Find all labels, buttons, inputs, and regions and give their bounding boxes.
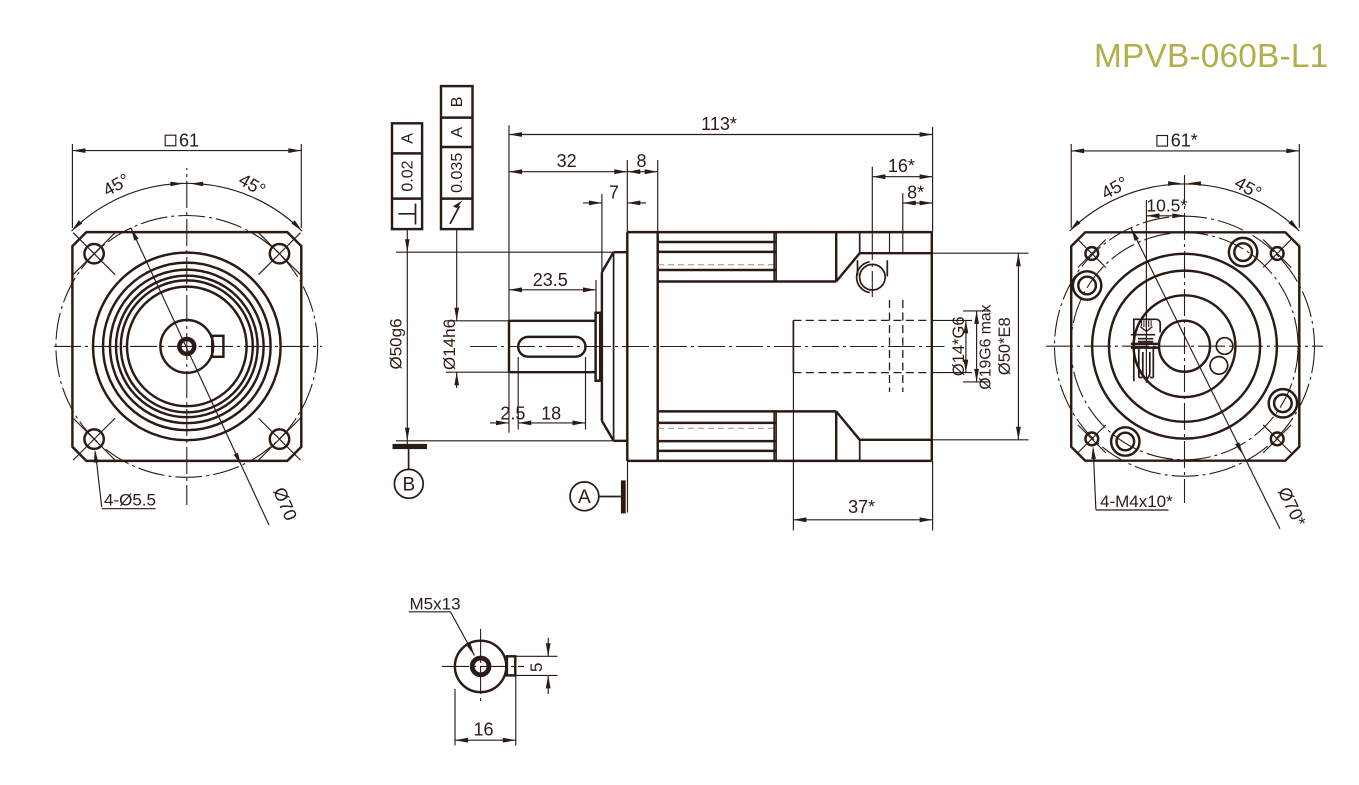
svg-text:B: B [402,475,415,496]
svg-text:7: 7 [609,183,619,203]
svg-text:23.5: 23.5 [533,270,568,290]
svg-text:113*: 113* [701,114,737,134]
svg-text:Ø50*E8: Ø50*E8 [996,317,1014,375]
svg-text:0.02: 0.02 [400,160,417,191]
svg-text:M5x13: M5x13 [410,595,461,614]
svg-text:5: 5 [527,663,546,672]
svg-text:8: 8 [636,151,646,171]
svg-text:A: A [578,487,591,508]
svg-text:32: 32 [557,151,577,171]
svg-text:61*: 61* [1171,131,1198,151]
svg-text:Ø50g6: Ø50g6 [387,318,406,369]
svg-text:8*: 8* [907,183,924,203]
svg-text:A: A [400,133,417,144]
svg-text:MPVB-060B-L1: MPVB-060B-L1 [1094,38,1328,75]
svg-text:Ø14*G6: Ø14*G6 [950,316,968,376]
svg-text:10.5*: 10.5* [1146,195,1187,215]
svg-text:37*: 37* [848,497,875,517]
svg-text:Ø19G6 max: Ø19G6 max [978,304,995,389]
svg-text:B: B [449,97,466,108]
svg-text:4-Ø5.5: 4-Ø5.5 [104,491,156,510]
svg-text:18: 18 [541,404,561,424]
svg-text:2.5: 2.5 [500,404,525,424]
svg-text:16*: 16* [888,156,915,176]
svg-text:Ø14h6: Ø14h6 [440,319,459,370]
svg-text:4-M4x10*: 4-M4x10* [1100,492,1173,511]
svg-text:0.035: 0.035 [449,153,466,193]
svg-text:A: A [449,127,466,138]
svg-text:61: 61 [179,130,199,150]
svg-text:16: 16 [473,720,493,740]
